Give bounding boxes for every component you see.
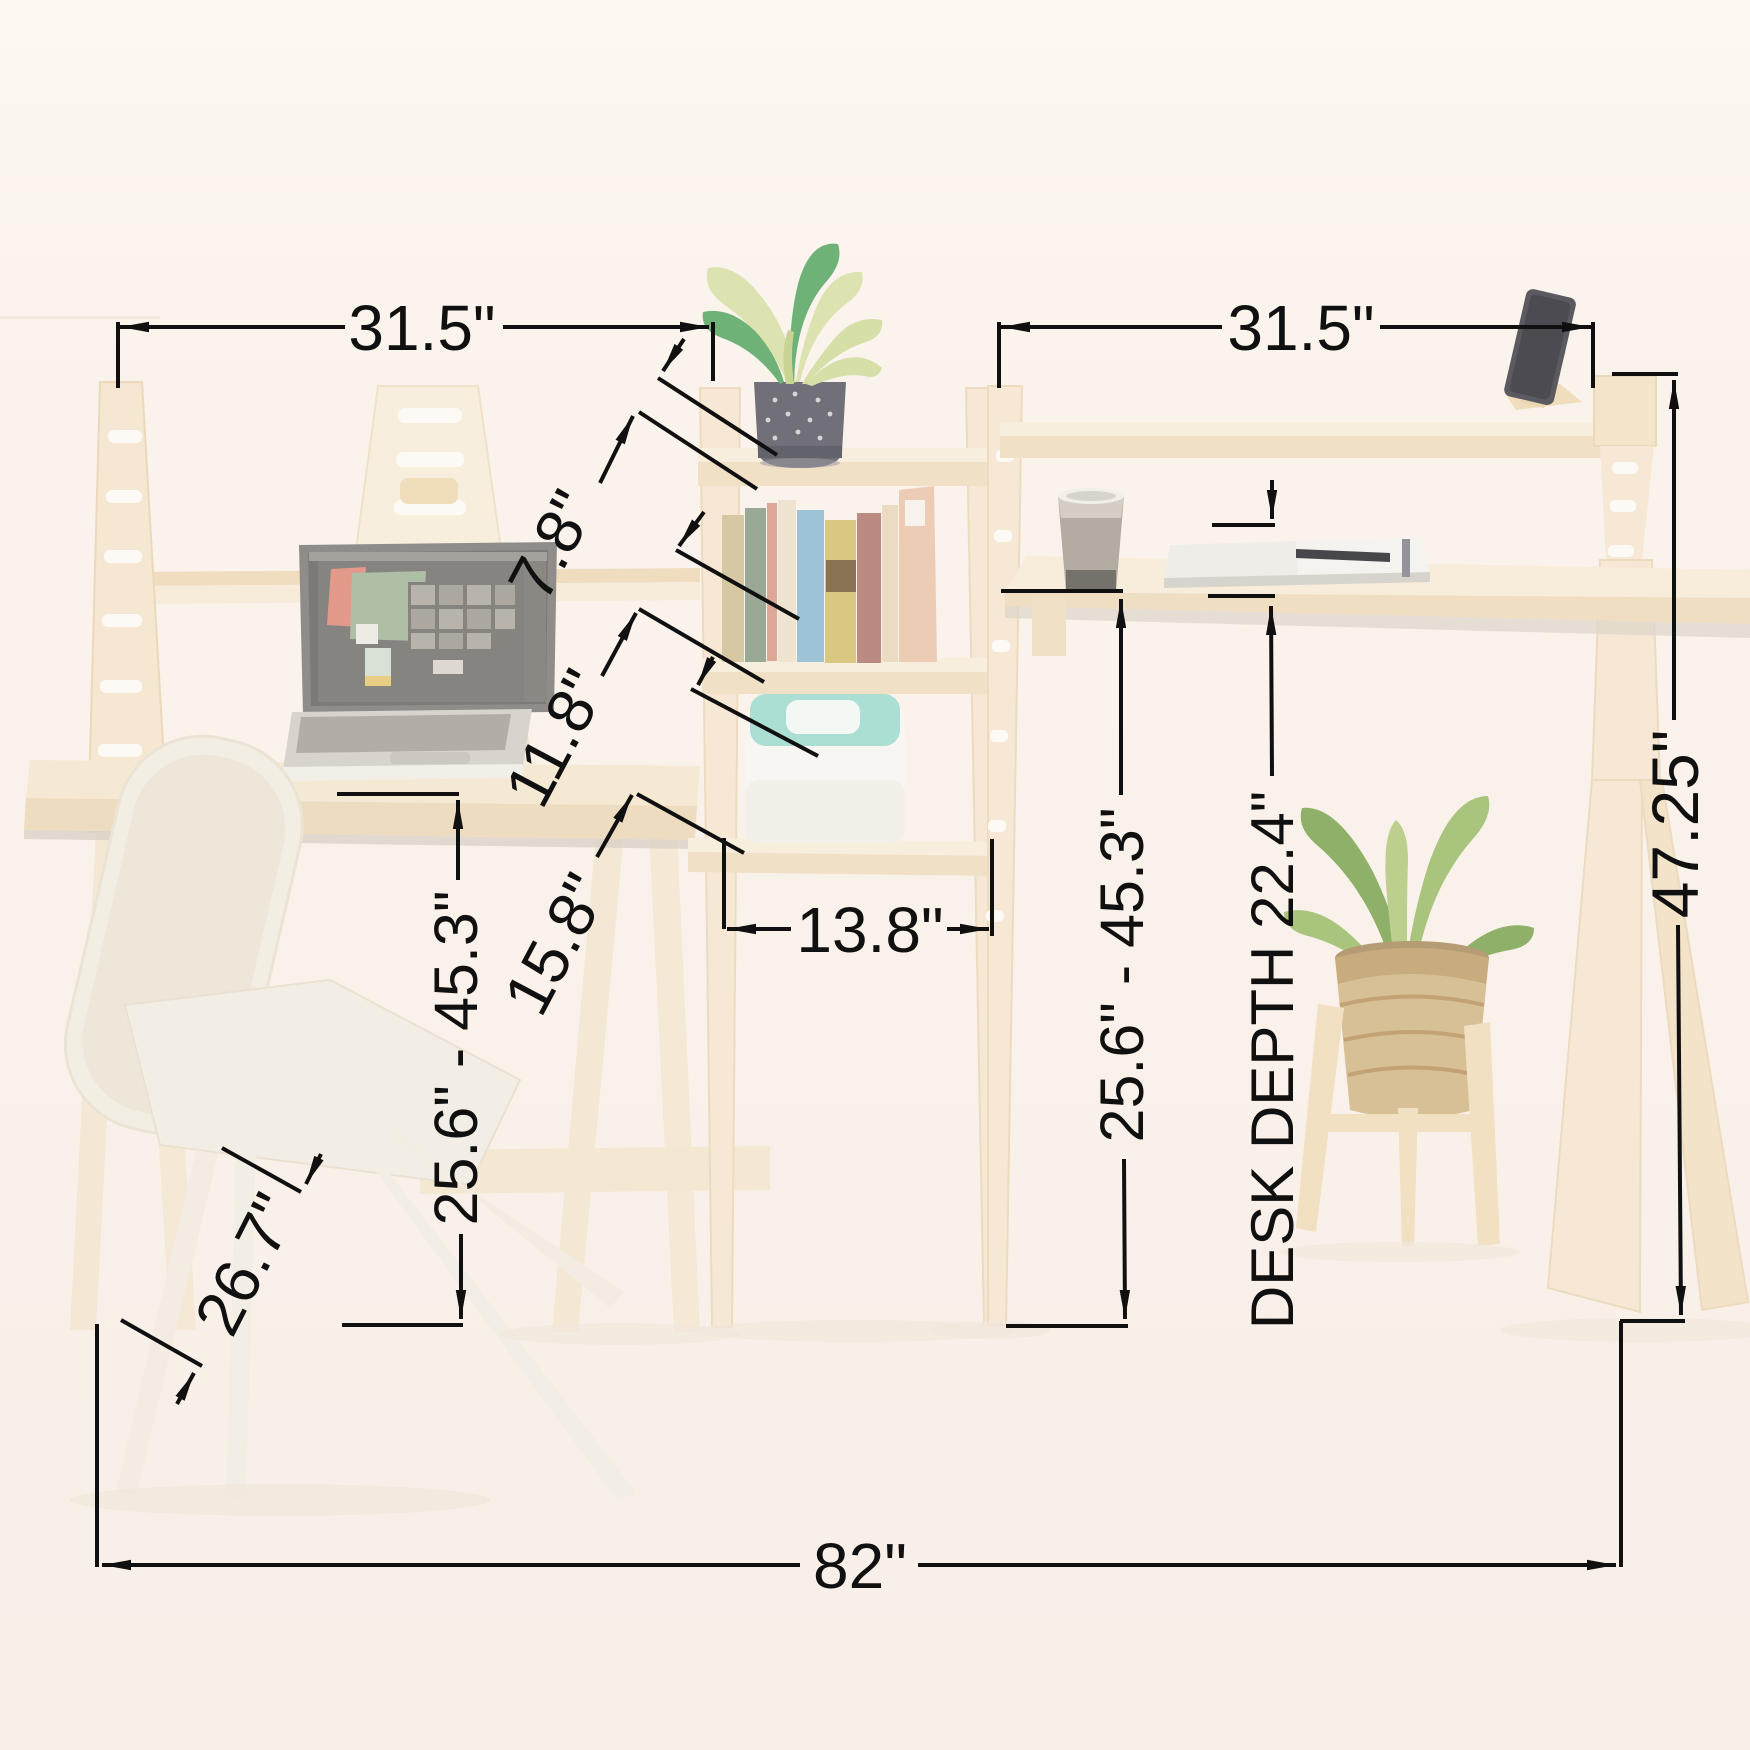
svg-text:82": 82": [813, 1530, 907, 1602]
svg-text:25.6" - 45.3": 25.6" - 45.3": [422, 891, 490, 1226]
svg-text:31.5": 31.5": [1227, 292, 1374, 364]
svg-text:13.8": 13.8": [796, 894, 943, 966]
svg-text:DESK DEPTH 22.4": DESK DEPTH 22.4": [1239, 791, 1306, 1329]
svg-text:47.25": 47.25": [1638, 730, 1712, 919]
svg-text:25.6" - 45.3": 25.6" - 45.3": [1088, 808, 1156, 1143]
svg-text:31.5": 31.5": [348, 292, 495, 364]
